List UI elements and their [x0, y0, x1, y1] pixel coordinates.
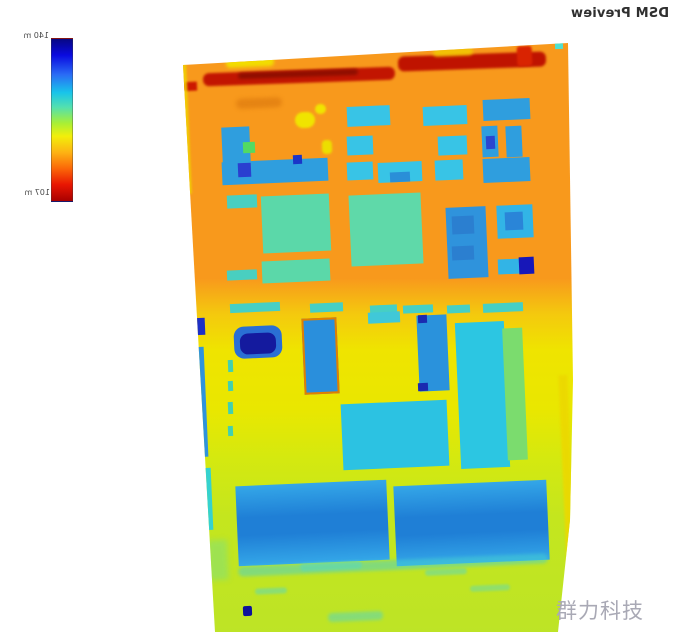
building	[227, 269, 257, 280]
building	[482, 157, 530, 183]
building	[505, 126, 522, 158]
yellow-blob	[322, 140, 333, 154]
building	[341, 400, 450, 471]
watermark-text: 群力科技	[556, 595, 644, 625]
low-structure	[447, 305, 470, 314]
yellow-blob	[315, 104, 326, 114]
marking-dot	[243, 606, 252, 616]
building	[348, 192, 423, 266]
tree-row-edge	[178, 82, 197, 92]
building-core	[390, 172, 410, 183]
building-core	[240, 332, 277, 355]
building-bordered	[301, 317, 339, 394]
building	[262, 259, 331, 284]
yellow-blob	[295, 112, 316, 129]
marking	[228, 402, 234, 414]
building-core	[519, 257, 535, 275]
building	[191, 347, 209, 457]
streak	[425, 568, 467, 576]
marking	[228, 426, 233, 436]
streak	[470, 584, 510, 592]
building	[227, 194, 258, 208]
low-structure	[483, 302, 523, 313]
building-core	[192, 318, 206, 336]
building-core	[486, 136, 496, 149]
dsm-map	[178, 40, 578, 636]
edge-highlight	[558, 375, 576, 590]
low-structure	[230, 302, 280, 313]
building	[423, 105, 468, 126]
building-core	[505, 212, 524, 231]
building-core	[238, 163, 252, 178]
streak	[255, 587, 287, 594]
building	[438, 135, 468, 155]
red-patch	[517, 46, 533, 67]
building-core	[452, 216, 475, 235]
streak	[207, 540, 229, 581]
shrub-smudge	[236, 97, 282, 109]
marking	[228, 360, 234, 372]
building	[347, 161, 374, 180]
yellow-strip	[226, 55, 274, 68]
colorbar-max-label: 140 m	[21, 31, 49, 40]
low-structure	[199, 468, 214, 530]
colorbar-gradient	[51, 38, 73, 202]
colorbar-min-label: 107 m	[24, 188, 50, 197]
low-structure	[403, 304, 433, 313]
building-large	[235, 480, 389, 567]
building	[416, 314, 449, 391]
building-annex-green	[243, 142, 255, 154]
building-core	[293, 155, 302, 164]
building	[483, 98, 531, 121]
page-title: DSM Preview	[570, 6, 670, 21]
marking	[228, 381, 233, 391]
building-core	[418, 315, 427, 323]
low-structure	[368, 311, 400, 323]
corner-pixel	[555, 43, 563, 49]
building-core	[452, 246, 475, 261]
streak	[328, 611, 383, 622]
low-structure	[310, 302, 343, 312]
building	[347, 105, 391, 127]
building	[261, 194, 331, 254]
building-core	[418, 383, 428, 391]
building	[347, 135, 374, 155]
building	[435, 159, 464, 180]
